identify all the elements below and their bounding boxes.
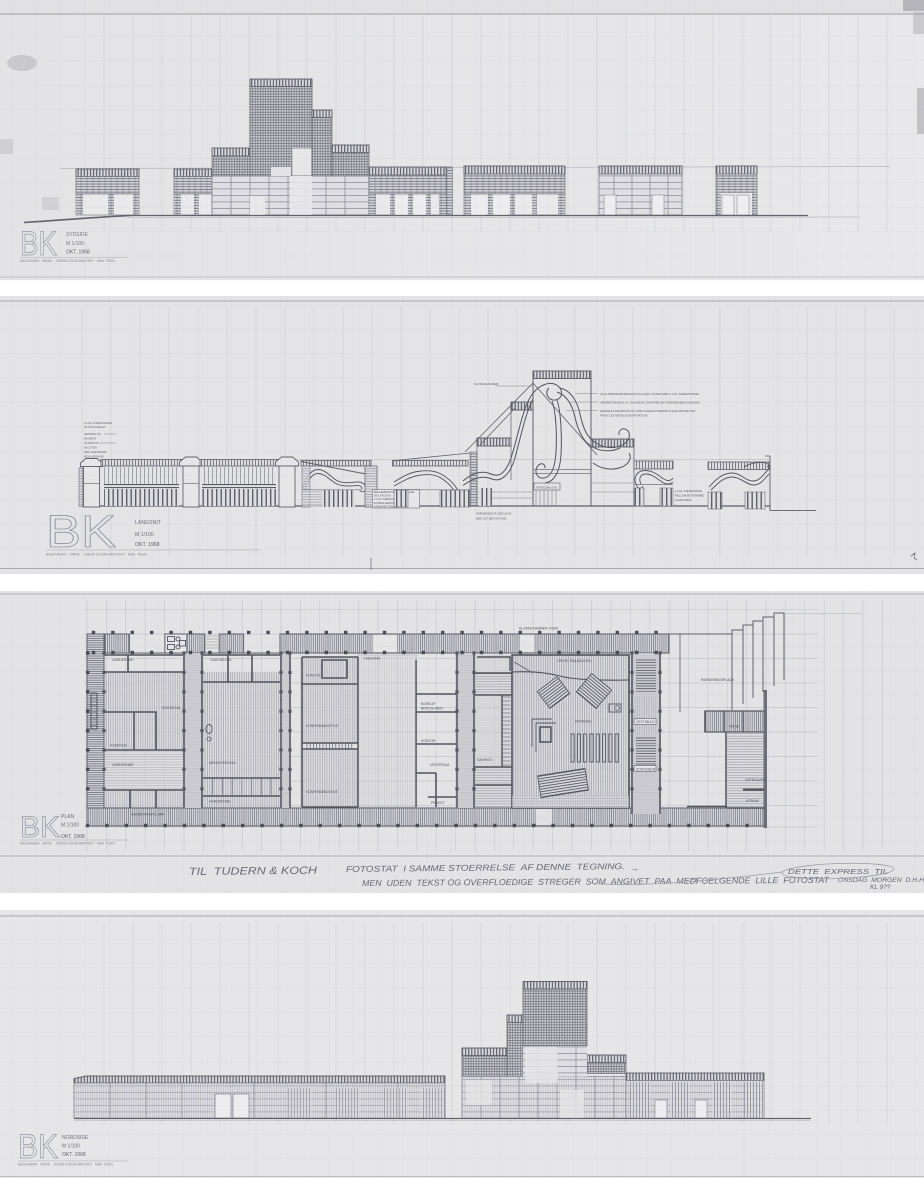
svg-text:GARDEROBE: GARDEROBE bbox=[112, 658, 134, 662]
svg-text:PRAEST: PRAEST bbox=[431, 801, 445, 805]
svg-text:→: → bbox=[630, 863, 639, 873]
svg-text:ORGELBALKON: ORGELBALKON bbox=[536, 486, 557, 490]
svg-text:BK: BK bbox=[18, 1128, 58, 1166]
svg-text:KIRKESAL: KIRKESAL bbox=[575, 720, 592, 724]
svg-text:ISOLATION M.: ISOLATION M. bbox=[374, 494, 392, 498]
svg-text:KONTOR: KONTOR bbox=[306, 674, 321, 678]
svg-text:KERAMISKE FLISEGULVE: KERAMISKE FLISEGULVE bbox=[476, 512, 511, 516]
svg-text:MED ALT BETON HVID: MED ALT BETON HVID bbox=[476, 517, 507, 521]
svg-text:KLOKKEKAMMER OVER: KLOKKEKAMMER OVER bbox=[519, 627, 559, 631]
svg-text:KONFIRMANDSTUE: KONFIRMANDSTUE bbox=[306, 724, 339, 728]
svg-text:KL 9??: KL 9?? bbox=[870, 884, 891, 891]
svg-text:LANGSNIT: LANGSNIT bbox=[135, 520, 162, 526]
svg-text:OKT. 1968: OKT. 1968 bbox=[62, 1152, 86, 1158]
svg-text:GARDEROBE: GARDEROBE bbox=[112, 763, 134, 767]
svg-text:M 1/100: M 1/100 bbox=[61, 823, 79, 829]
svg-text:ALLE ABNINGER MELLEM SKALLER L: ALLE ABNINGER MELLEM SKALLER LUKKES MED … bbox=[600, 392, 699, 396]
svg-text:ATRIUM: ATRIUM bbox=[746, 799, 759, 803]
svg-text:BAGSVAERD KIRKE JOERN UTZ: BAGSVAERD KIRKE JOERN UTZON ARKITEKT MAA… bbox=[18, 1163, 114, 1167]
svg-text:M 1/100: M 1/100 bbox=[135, 532, 154, 538]
svg-text:LETBETON: LETBETON bbox=[84, 441, 99, 445]
svg-text:NEDSEJLNINGSKUNSTIG SOM VANDAF: NEDSEJLNINGSKUNSTIG SOM VANDAFVISENDE PL… bbox=[600, 409, 696, 413]
svg-text:BAGSVAERD KIRKE JOERN UTZ: BAGSVAERD KIRKE JOERN UTZON ARKITEKT MAA… bbox=[20, 842, 116, 846]
svg-text:OKT. 1968: OKT. 1968 bbox=[135, 542, 160, 548]
svg-text:BAGSVAERD KIRKE JOERN UTZ: BAGSVAERD KIRKE JOERN UTZON ARKITEKT MAA… bbox=[46, 553, 148, 557]
svg-text:JERNBETON: JERNBETON bbox=[84, 432, 101, 436]
svg-text:BAGMUR: BAGMUR bbox=[84, 437, 96, 441]
svg-text:KONFIRMANDSTUE: KONFIRMANDSTUE bbox=[306, 790, 339, 794]
svg-text:KLOKKEKAMMER: KLOKKEKAMMER bbox=[474, 382, 498, 386]
svg-text:URTEGAARD: URTEGAARD bbox=[745, 778, 767, 782]
svg-text:SAKRISTI: SAKRISTI bbox=[477, 758, 493, 762]
svg-text:PA EN LET METALKONSTRUKTION: PA EN LET METALKONSTRUKTION bbox=[600, 414, 648, 418]
svg-text:M 1/100: M 1/100 bbox=[62, 1144, 80, 1150]
svg-text:MELLEM BETONRIBBE: MELLEM BETONRIBBE bbox=[675, 494, 704, 498]
svg-text:GARDEROBE: GARDEROBE bbox=[209, 800, 231, 804]
svg-text:VESTIBULE: VESTIBULE bbox=[636, 720, 655, 724]
svg-text:KOEB AF: KOEB AF bbox=[421, 702, 436, 706]
svg-text:BROCHURER: BROCHURER bbox=[421, 707, 443, 711]
svg-text:ORGEL PAA BALKON: ORGEL PAA BALKON bbox=[557, 659, 591, 663]
svg-text:MENIGHEDSSAL: MENIGHEDSSAL bbox=[209, 761, 236, 765]
svg-text:M 1/100: M 1/100 bbox=[66, 241, 84, 247]
svg-text:OKT. 1968: OKT. 1968 bbox=[66, 250, 90, 256]
svg-text:GARDEROBE: GARDEROBE bbox=[210, 658, 232, 662]
svg-text:KONTOR: KONTOR bbox=[421, 739, 436, 743]
svg-text:BEKLAEDNING: BEKLAEDNING bbox=[84, 455, 104, 459]
svg-text:TIL TUDERN & KOCH: TIL TUDERN & KOCH bbox=[189, 865, 318, 878]
svg-text:VENTERUM: VENTERUM bbox=[430, 763, 449, 767]
svg-text:BK: BK bbox=[20, 811, 60, 844]
svg-text:MED HAERENDE: MED HAERENDE bbox=[84, 450, 107, 454]
svg-text:OKT. 1968: OKT. 1968 bbox=[61, 834, 85, 840]
svg-text:KONTORER: KONTORER bbox=[636, 768, 656, 772]
svg-text:2 LAG THERMOPANE: 2 LAG THERMOPANE bbox=[675, 489, 702, 493]
svg-text:KAPEL: KAPEL bbox=[729, 725, 740, 729]
svg-text:BK: BK bbox=[46, 506, 116, 557]
svg-text:SAKRISTIKAPEL MM: SAKRISTIKAPEL MM bbox=[131, 813, 164, 817]
svg-text:HULSTEN: HULSTEN bbox=[84, 446, 97, 450]
svg-text:BAGSVAERD KIRKE JOERN UTZ: BAGSVAERD KIRKE JOERN UTZON ARKITEKT MAA… bbox=[20, 259, 116, 263]
svg-text:DETTE EXPRESS TIL: DETTE EXPRESS TIL bbox=[788, 867, 888, 876]
svg-text:PARKERINGSPLADS: PARKERINGSPLADS bbox=[701, 678, 735, 682]
svg-text:MOEDESAL: MOEDESAL bbox=[162, 706, 181, 710]
